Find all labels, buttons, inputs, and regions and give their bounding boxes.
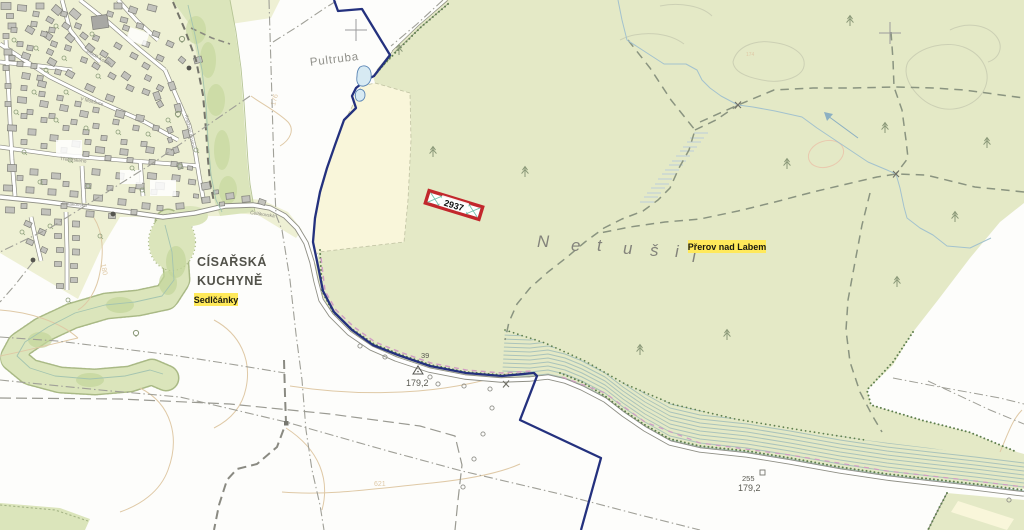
svg-text:179,2: 179,2 — [738, 483, 761, 493]
svg-text:KUCHYNĚ: KUCHYNĚ — [197, 273, 263, 288]
svg-text:179,2: 179,2 — [406, 378, 429, 388]
svg-text:Přerov nad Labem: Přerov nad Labem — [688, 242, 767, 252]
svg-text:e: e — [571, 236, 580, 255]
svg-text:39: 39 — [421, 351, 429, 360]
svg-text:CÍSAŘSKÁ: CÍSAŘSKÁ — [197, 254, 267, 269]
svg-text:255: 255 — [742, 474, 755, 483]
svg-text:N: N — [537, 232, 550, 251]
svg-text:u: u — [623, 239, 633, 258]
svg-text:š: š — [650, 241, 659, 260]
svg-text:Sedlčánky: Sedlčánky — [194, 295, 239, 305]
svg-text:621: 621 — [374, 481, 386, 488]
svg-text:174: 174 — [746, 52, 755, 58]
